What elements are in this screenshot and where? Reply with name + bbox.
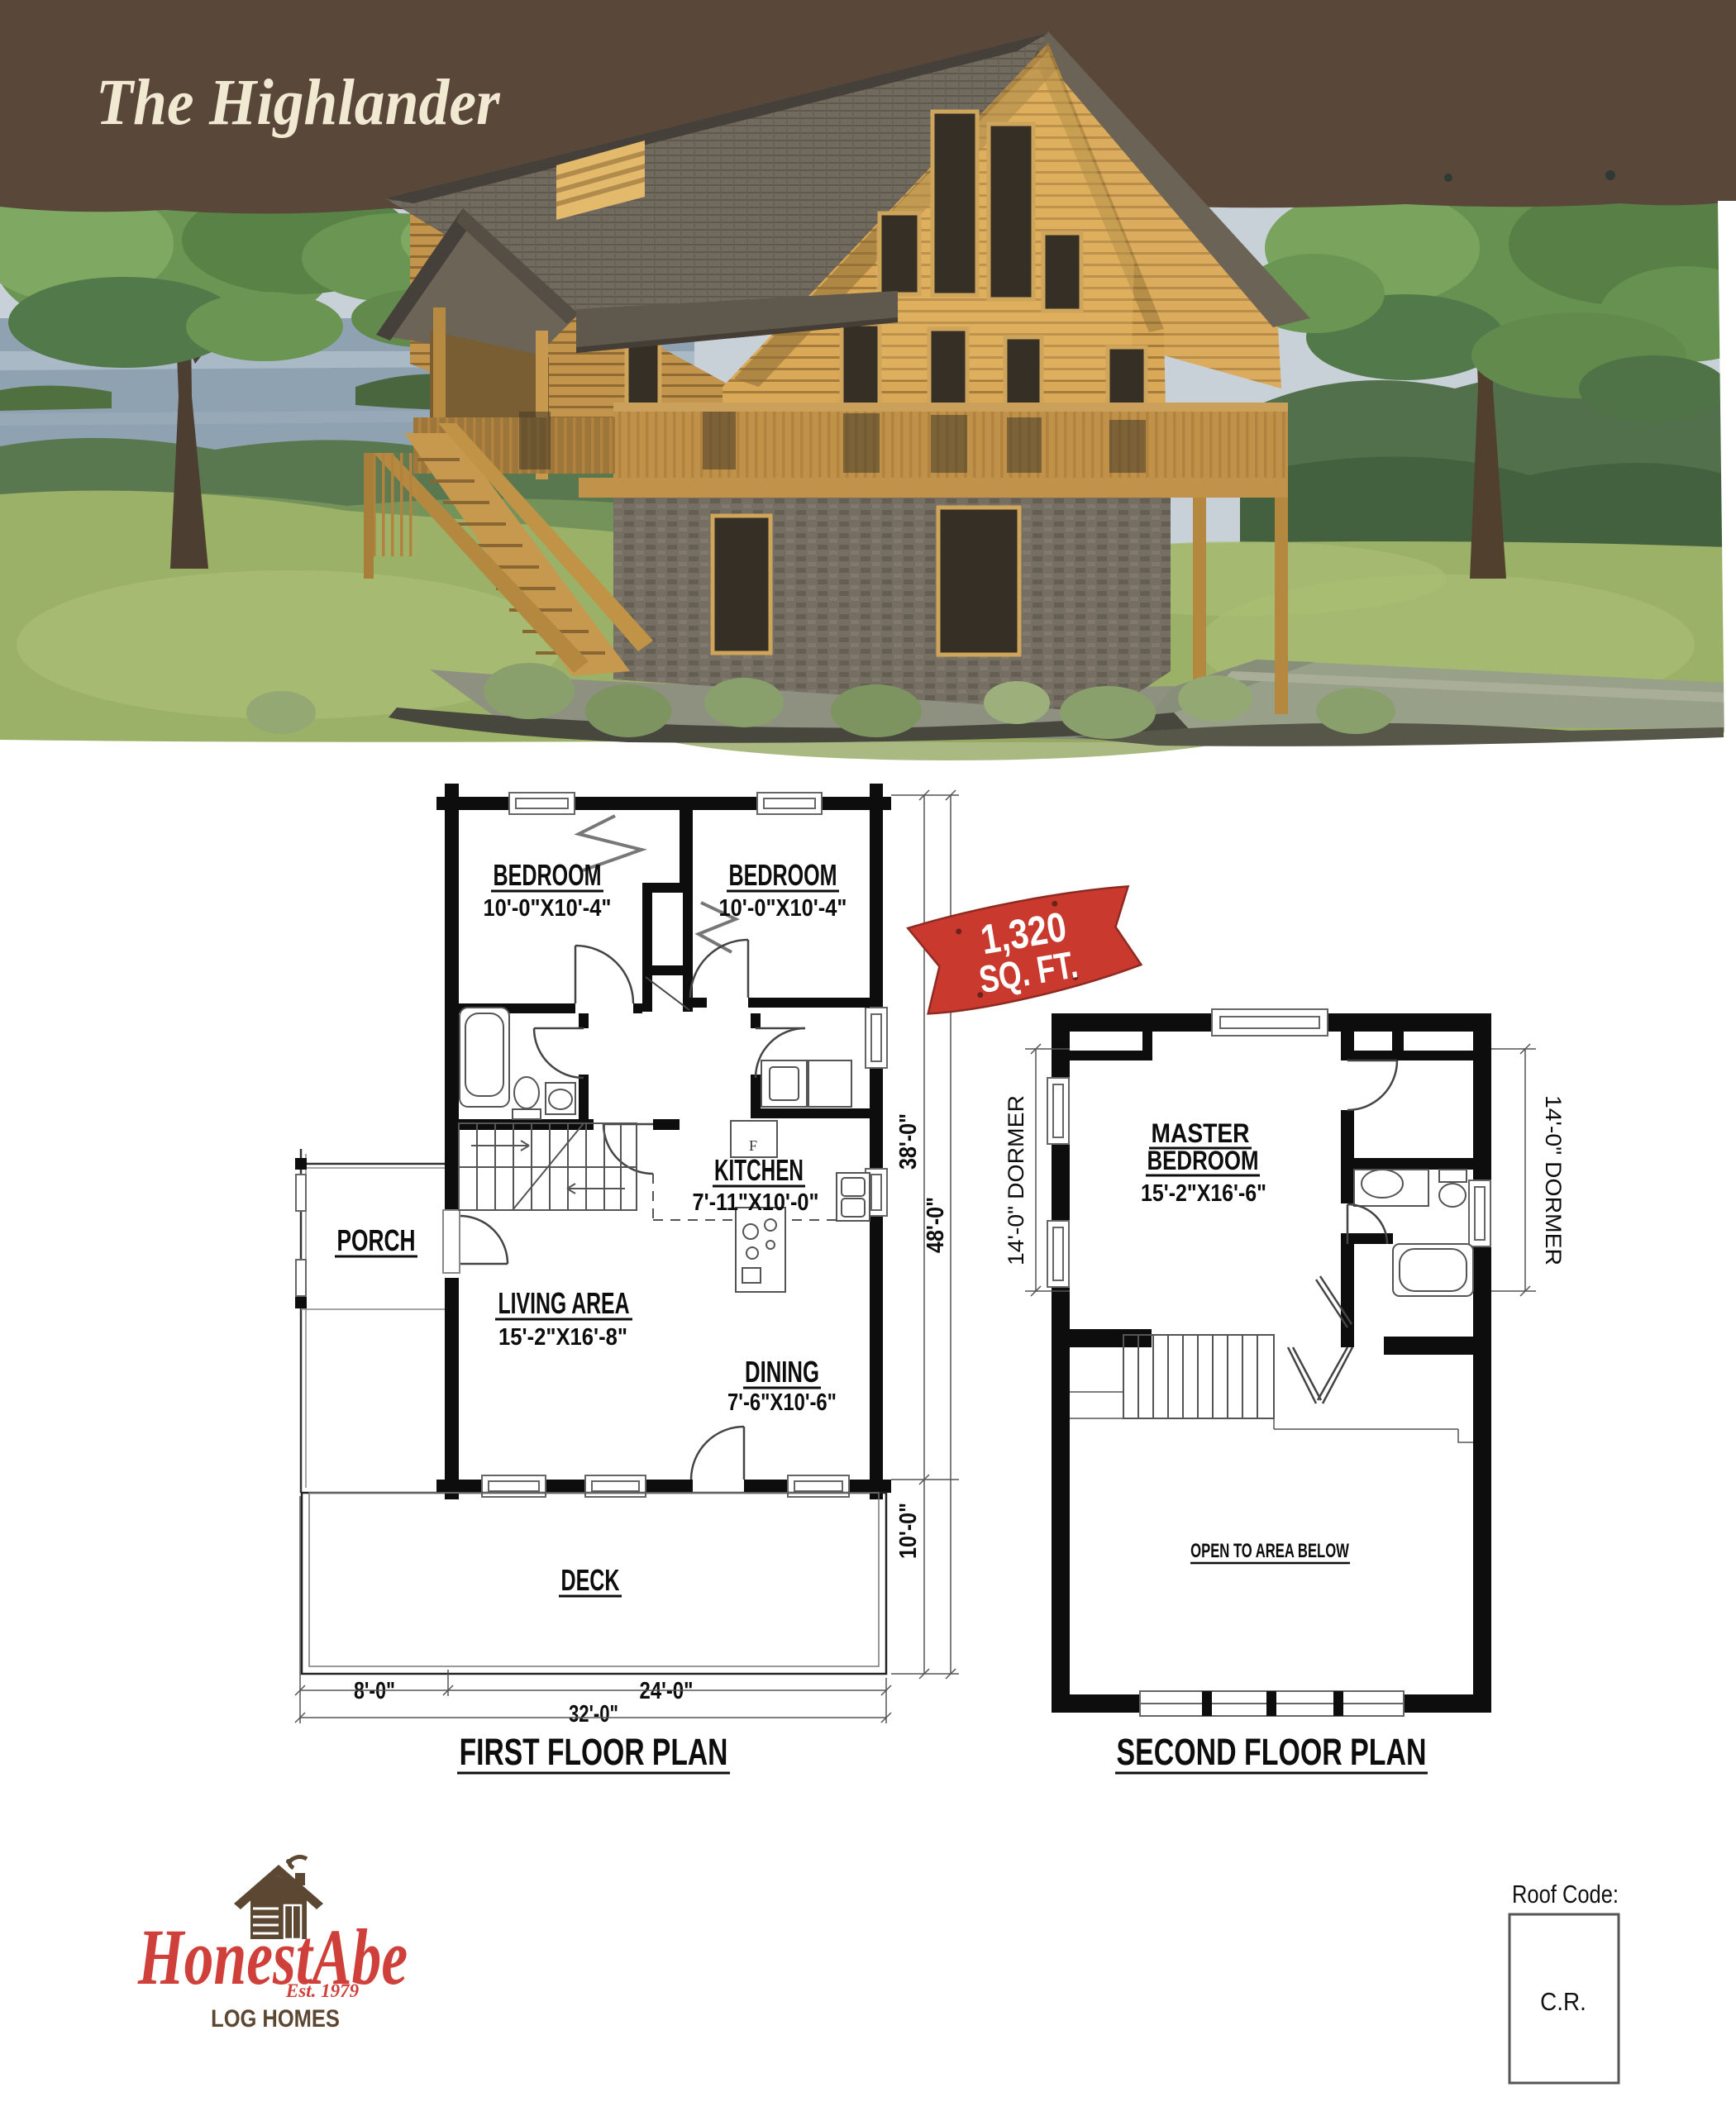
svg-text:10'-0"X10'-4": 10'-0"X10'-4" [484,894,612,921]
svg-text:Roof Code:: Roof Code: [1512,1880,1619,1909]
svg-text:DINING: DINING [745,1356,819,1389]
svg-text:The Highlander: The Highlander [96,65,501,138]
svg-text:PORCH: PORCH [337,1223,416,1257]
svg-text:LIVING AREA: LIVING AREA [498,1286,629,1320]
svg-text:BEDROOM: BEDROOM [1147,1146,1259,1175]
svg-text:BEDROOM: BEDROOM [494,859,602,893]
svg-text:LOG HOMES: LOG HOMES [211,2004,340,2032]
svg-text:10'-0": 10'-0" [894,1503,921,1559]
svg-text:7'-11"X10'-0": 7'-11"X10'-0" [693,1188,819,1215]
svg-text:F: F [749,1137,757,1154]
svg-text:48'-0": 48'-0" [921,1197,948,1253]
svg-text:14'-0" DORMER: 14'-0" DORMER [1541,1095,1566,1265]
svg-text:38'-0": 38'-0" [894,1113,921,1170]
svg-text:FIRST FLOOR PLAN: FIRST FLOOR PLAN [460,1732,728,1773]
svg-text:14'-0" DORMER: 14'-0" DORMER [1004,1095,1028,1265]
svg-text:MASTER: MASTER [1152,1119,1250,1148]
svg-text:BEDROOM: BEDROOM [729,859,837,893]
svg-text:KITCHEN: KITCHEN [714,1153,804,1187]
svg-text:7'-6"X10'-6": 7'-6"X10'-6" [727,1389,837,1416]
svg-text:15'-2"X16'-8": 15'-2"X16'-8" [498,1322,627,1350]
svg-text:10'-0"X10'-4": 10'-0"X10'-4" [719,894,847,921]
svg-text:32'-0": 32'-0" [569,1701,618,1727]
svg-text:OPEN TO AREA BELOW: OPEN TO AREA BELOW [1190,1540,1349,1562]
svg-text:DECK: DECK [561,1563,620,1597]
svg-text:C.R.: C.R. [1540,1988,1586,2017]
svg-text:Est. 1979: Est. 1979 [285,1980,360,2001]
svg-text:SECOND FLOOR PLAN: SECOND FLOOR PLAN [1116,1732,1426,1773]
svg-text:15'-2"X16'-6": 15'-2"X16'-6" [1141,1180,1266,1206]
svg-text:HonestAbe: HonestAbe [137,1914,408,2001]
